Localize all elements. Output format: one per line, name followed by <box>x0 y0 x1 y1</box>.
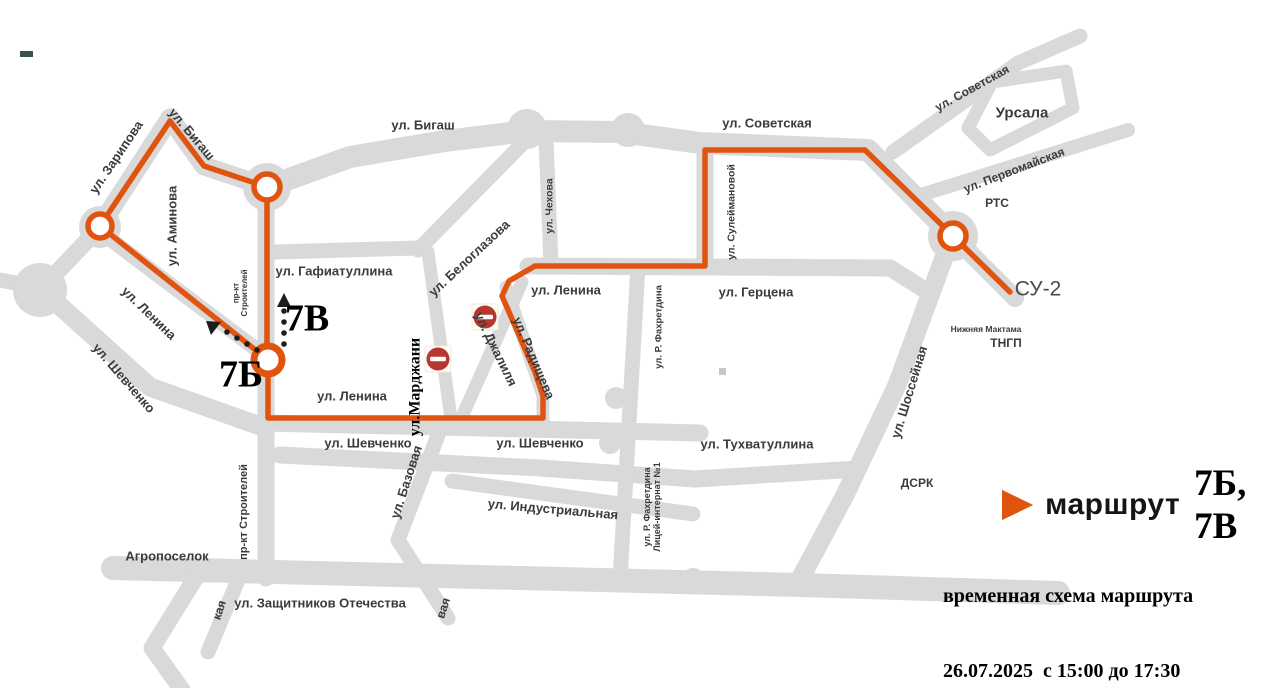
street-label: 7В <box>285 297 329 339</box>
legend-route-numbers: 7Б, 7В <box>1194 462 1280 548</box>
road <box>113 568 1058 593</box>
street-label: ул.Марджани <box>407 338 424 437</box>
road <box>798 255 945 583</box>
roundabout <box>507 109 547 149</box>
no-entry-bar <box>430 357 446 361</box>
street-label: ул. Шевченко <box>496 436 583 451</box>
roundabout <box>599 432 621 454</box>
street-label: ул. Ленина <box>317 389 388 404</box>
street-label: ул. Р. Фахретдина <box>653 284 664 368</box>
route-arrow-icon <box>1002 489 1033 522</box>
street-label: РТС <box>985 196 1009 210</box>
road <box>152 577 196 688</box>
route-stop-ring <box>88 214 112 238</box>
street-label: ул. Р. ФахретдинаЛицей-интернат №1 <box>642 462 662 551</box>
small-square-mark <box>719 368 726 375</box>
street-label: ул. Чехова <box>544 178 556 234</box>
street-label: ул. Тухватуллина <box>701 437 815 452</box>
street-label: ул. Сулеймановой <box>726 164 738 260</box>
street-label: Урсала <box>996 104 1049 121</box>
street-label: ул. Ленина <box>531 283 602 298</box>
street-label: Агропоселок <box>125 549 209 564</box>
street-label: 7Б <box>219 353 263 395</box>
small-artifact <box>20 51 33 57</box>
schedule-line2: 26.07.2025 с 15:00 до 17:30 <box>943 659 1193 684</box>
schedule-line1: временная схема маршрута <box>943 584 1193 609</box>
arrow-7b-dot <box>234 335 240 341</box>
street-label: ТНГП <box>990 336 1021 350</box>
road <box>267 131 868 187</box>
legend-route-word: маршрут <box>1045 488 1180 522</box>
arrow-7b-dot <box>224 329 230 335</box>
route-stop-ring <box>940 223 966 249</box>
route-stop-ring <box>254 174 280 200</box>
street-label: ул. Защитников Отечества <box>234 596 406 611</box>
road <box>620 266 638 580</box>
route-map-canvas: ул. Бигашул. Зариповаул. Аминоваул. Бига… <box>0 0 1280 688</box>
road <box>274 248 418 252</box>
street-label: ул. Шевченко <box>324 436 411 451</box>
street-label: ул. Аминова <box>165 185 180 266</box>
street-label: Нижняя Мактама <box>951 324 1022 334</box>
street-label: ул. Гафиатуллина <box>276 264 394 279</box>
street-label: пр-ктСтроителей <box>231 269 249 316</box>
street-label: ДСРК <box>901 476 934 490</box>
roundabout <box>611 113 645 147</box>
schedule-note: временная схема маршрута 26.07.2025 с 15… <box>943 534 1193 688</box>
arrow-7v-dot <box>281 341 287 347</box>
road <box>280 455 858 479</box>
street-label: ул. Бигаш <box>391 118 454 133</box>
roundabout <box>681 568 705 592</box>
arrow-7b-dot <box>244 341 250 347</box>
street-label: СУ-2 <box>1015 277 1061 300</box>
street-label: ул. Герцена <box>719 285 794 300</box>
roundabout <box>605 387 627 409</box>
street-label: пр-кт Строителей <box>238 464 250 560</box>
street-label: ул. Советская <box>722 116 812 131</box>
roundabout <box>13 263 67 317</box>
arrow-7b-dot <box>254 347 260 353</box>
